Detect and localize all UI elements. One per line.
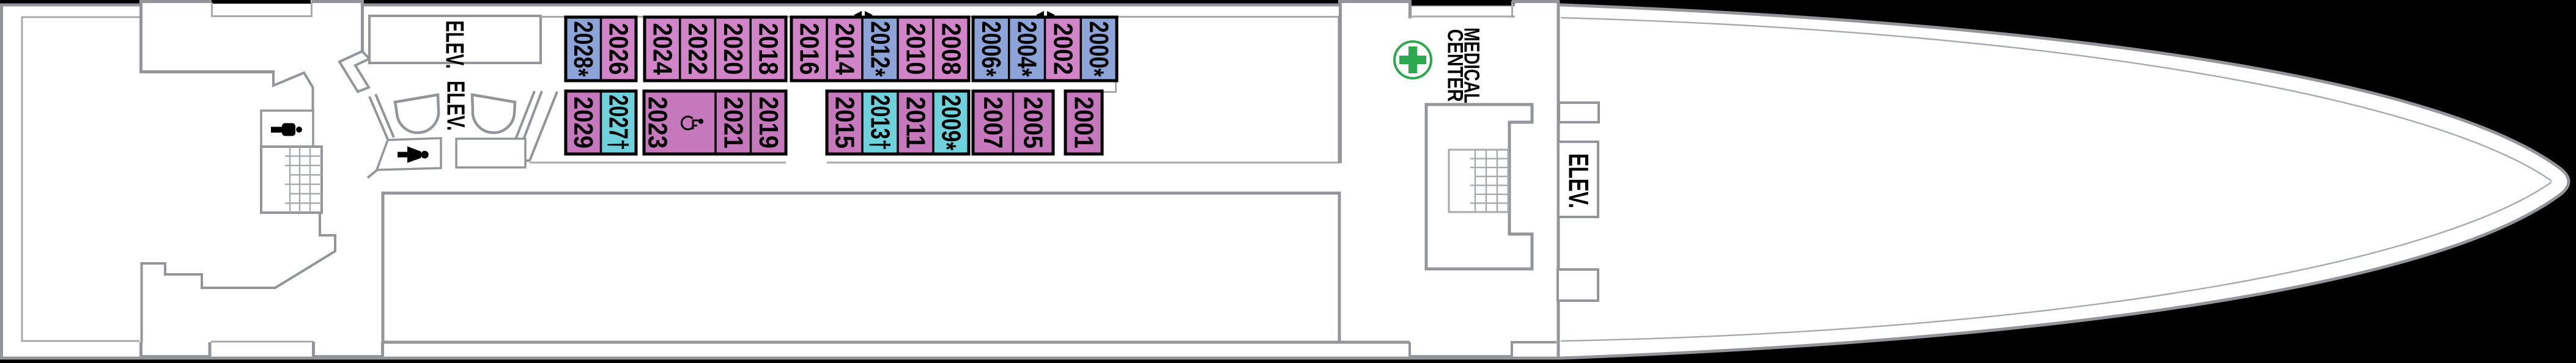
svg-text:2024: 2024: [647, 23, 677, 75]
svg-text:2005: 2005: [1018, 97, 1048, 148]
svg-text:2023: 2023: [643, 97, 673, 148]
svg-text:2016: 2016: [794, 23, 824, 75]
svg-text:ELEV.: ELEV.: [441, 21, 470, 69]
svg-text:ELEV.: ELEV.: [1563, 153, 1594, 208]
svg-text:2015: 2015: [830, 97, 860, 148]
svg-text:2000*: 2000*: [1079, 21, 1114, 78]
svg-text:2018: 2018: [753, 23, 783, 75]
svg-text:2022: 2022: [683, 23, 712, 75]
svg-text:2027†: 2027†: [604, 95, 634, 150]
svg-text:2011: 2011: [901, 97, 931, 148]
svg-text:2014: 2014: [830, 23, 860, 75]
svg-text:2026: 2026: [604, 23, 634, 75]
svg-text:2029: 2029: [568, 97, 598, 148]
svg-text:2008: 2008: [936, 23, 966, 75]
svg-text:2012*: 2012*: [861, 21, 895, 78]
svg-text:ELEV.: ELEV.: [442, 81, 470, 131]
svg-text:2001: 2001: [1069, 97, 1099, 148]
svg-text:2013†: 2013†: [865, 95, 895, 150]
svg-text:2021: 2021: [718, 97, 748, 148]
svg-text:2006*: 2006*: [972, 21, 1006, 78]
svg-text:CENTER: CENTER: [1443, 29, 1467, 102]
svg-text:2009*: 2009*: [932, 95, 966, 151]
svg-text:2020: 2020: [718, 23, 748, 75]
svg-text:2007: 2007: [978, 97, 1008, 148]
svg-text:2004*: 2004*: [1008, 21, 1042, 78]
svg-text:2002: 2002: [1048, 23, 1078, 75]
svg-text:2028*: 2028*: [564, 21, 598, 78]
svg-text:2010: 2010: [901, 23, 931, 75]
svg-text:2019: 2019: [753, 97, 783, 148]
